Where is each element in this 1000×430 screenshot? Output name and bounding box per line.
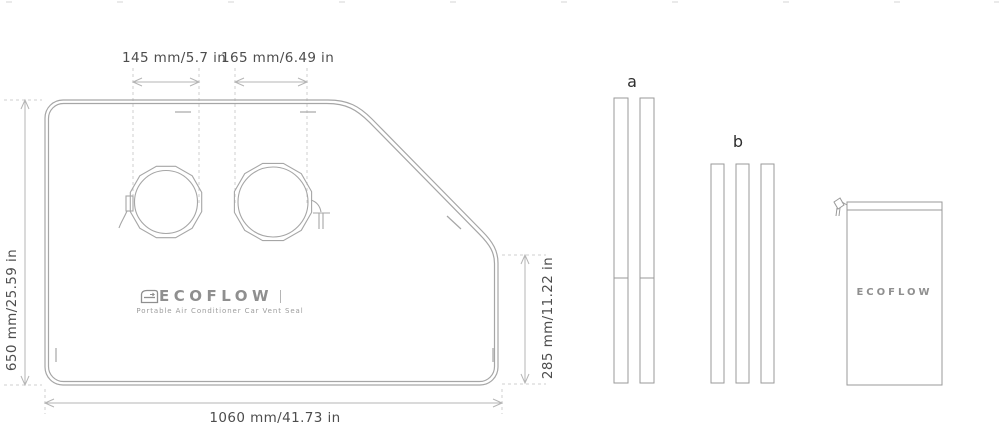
dim-vent-right-label: 165 mm/6.49 in: [221, 50, 323, 66]
dim-height-label: 650 mm/25.59 in: [4, 235, 20, 385]
dim-vent-left-label: 145 mm/5.7 in: [122, 50, 212, 66]
dim-right-edge-label: 285 mm/11.22 in: [540, 248, 556, 388]
support-bars-group-b: [711, 164, 774, 383]
bars-group-b-label: b: [728, 132, 748, 151]
drawstring-toggle-icon: [834, 198, 847, 216]
logo-divider: [280, 290, 281, 303]
bars-group-a-label: a: [622, 72, 642, 91]
vent-strap-right: [311, 200, 330, 229]
ecoflow-wordmark: ECOFLOW: [159, 289, 273, 304]
seal-panel-outline: [45, 100, 498, 385]
seal-product-subtitle: Portable Air Conditioner Car Vent Seal: [136, 308, 303, 315]
support-bars-group-a: [614, 98, 654, 383]
dimension-arrows: [21, 78, 529, 407]
bag-printed-logo: ECOFLOW: [847, 287, 942, 298]
seal-printed-logo: ECOFLOW Portable Air Conditioner Car Ven…: [140, 289, 300, 315]
car-door-icon: [140, 289, 159, 304]
vent-hole-left: [119, 166, 202, 237]
vent-hole-right: [234, 163, 330, 240]
product-dimension-diagram: 145 mm/5.7 in 165 mm/6.49 in 650 mm/25.5…: [0, 0, 1000, 430]
dim-width-label: 1060 mm/41.73 in: [195, 410, 355, 426]
